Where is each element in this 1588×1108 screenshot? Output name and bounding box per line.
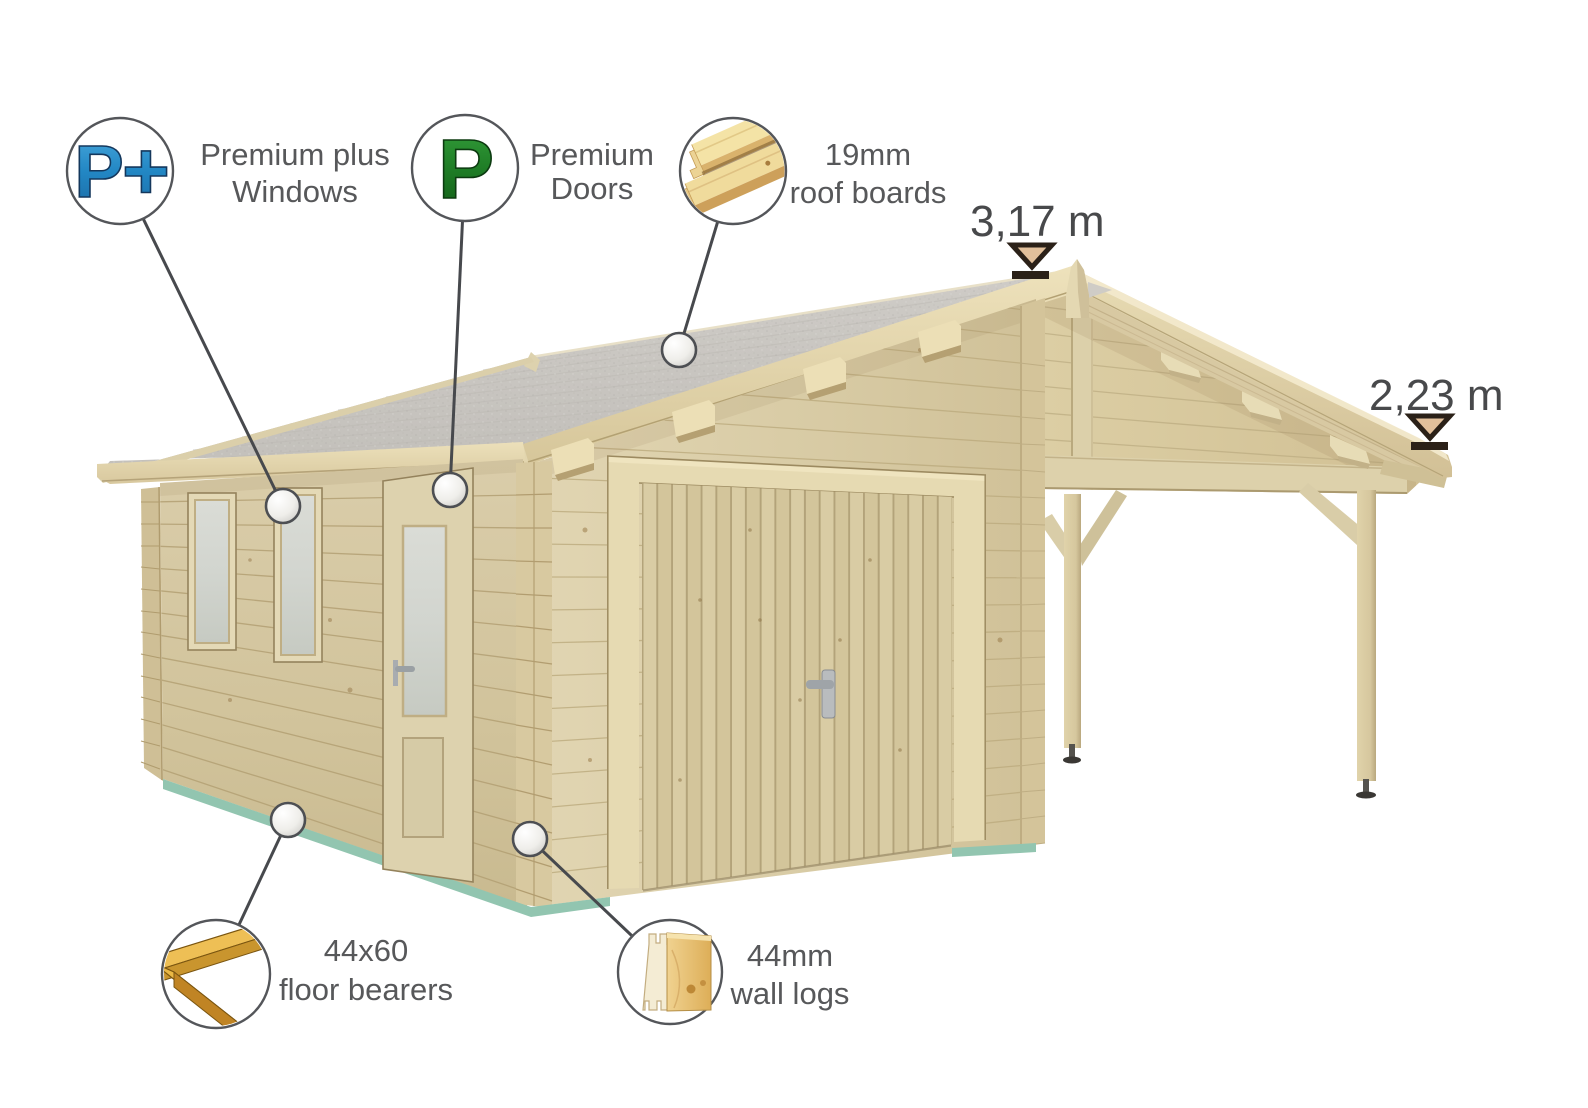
svg-text:wall logs: wall logs — [730, 976, 850, 1011]
svg-text:3,17 m: 3,17 m — [970, 197, 1105, 246]
svg-text:Premium: Premium — [530, 137, 654, 172]
svg-text:P: P — [438, 122, 494, 216]
svg-text:44mm: 44mm — [747, 938, 833, 973]
svg-text:roof boards: roof boards — [790, 175, 947, 210]
svg-text:Premium plus: Premium plus — [200, 137, 390, 172]
svg-text:2,23 m: 2,23 m — [1369, 371, 1504, 420]
svg-text:Doors: Doors — [551, 171, 634, 206]
svg-text:+: + — [122, 126, 170, 217]
svg-text:P: P — [74, 130, 123, 213]
svg-text:19mm: 19mm — [825, 137, 911, 172]
svg-text:44x60: 44x60 — [324, 933, 408, 968]
svg-text:floor bearers: floor bearers — [279, 972, 453, 1007]
svg-text:Windows: Windows — [232, 174, 358, 209]
